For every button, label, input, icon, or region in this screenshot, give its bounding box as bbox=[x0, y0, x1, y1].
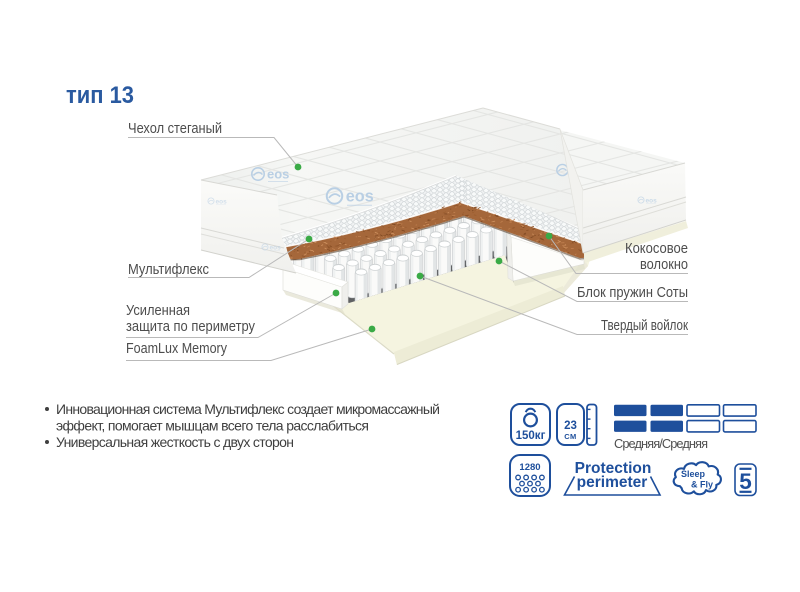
svg-text:23: 23 bbox=[564, 420, 577, 432]
svg-text:5: 5 bbox=[739, 469, 752, 494]
svg-text:Усиленная: Усиленная bbox=[126, 302, 190, 319]
svg-text:тип 13: тип 13 bbox=[66, 82, 134, 109]
svg-text:eos: eos bbox=[270, 244, 282, 251]
svg-text:Универсальная жесткость с двух: Универсальная жесткость с двух сторон bbox=[56, 434, 294, 450]
svg-text:perimeter: perimeter bbox=[577, 474, 648, 491]
svg-text:FoamLux Memory: FoamLux Memory bbox=[126, 340, 227, 357]
svg-text:Инновационная система Мультифл: Инновационная система Мультифлекс создае… bbox=[56, 401, 440, 417]
svg-text:Блок пружин Соты: Блок пружин Соты bbox=[577, 284, 688, 301]
svg-text:Чехол стеганый: Чехол стеганый bbox=[128, 120, 222, 137]
svg-text:Кокосовое: Кокосовое bbox=[625, 240, 688, 257]
svg-text:защита по периметру: защита по периметру bbox=[126, 318, 255, 335]
svg-text:Твердый войлок: Твердый войлок bbox=[601, 317, 688, 334]
svg-text:Sleep: Sleep bbox=[681, 469, 706, 479]
svg-text:eos: eos bbox=[346, 188, 374, 206]
svg-text:волокно: волокно bbox=[640, 256, 688, 273]
svg-text:1280: 1280 bbox=[519, 462, 540, 473]
svg-text:150кг: 150кг bbox=[516, 430, 546, 442]
svg-text:eos: eos bbox=[267, 167, 289, 182]
svg-text:eos: eos bbox=[216, 198, 228, 205]
svg-text:& Fly: & Fly bbox=[691, 480, 713, 490]
svg-text:эффект, помогает мышцам всего: эффект, помогает мышцам всего тела рассл… bbox=[56, 418, 369, 434]
svg-text:СМ: СМ bbox=[564, 432, 577, 441]
svg-text:eos: eos bbox=[646, 197, 658, 204]
svg-text:Средняя/Средняя: Средняя/Средняя bbox=[614, 436, 708, 451]
svg-text:Мультифлекс: Мультифлекс bbox=[128, 261, 209, 278]
